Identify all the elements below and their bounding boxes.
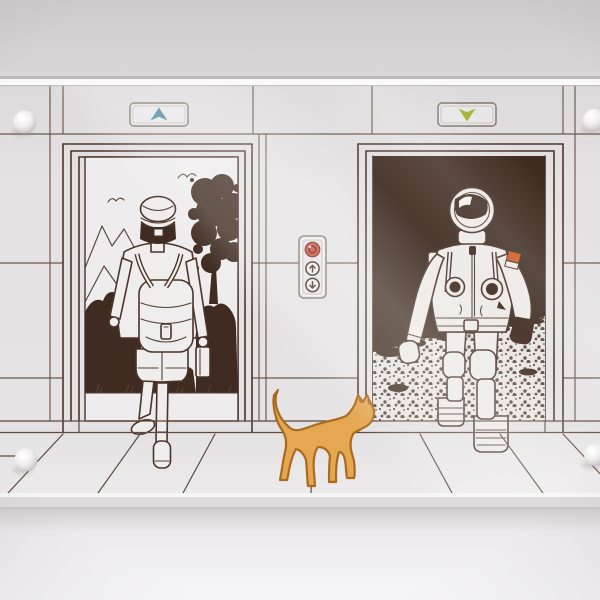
product-photo [0,0,600,600]
wall-decal-illustration [0,0,600,600]
vignette [0,0,600,600]
